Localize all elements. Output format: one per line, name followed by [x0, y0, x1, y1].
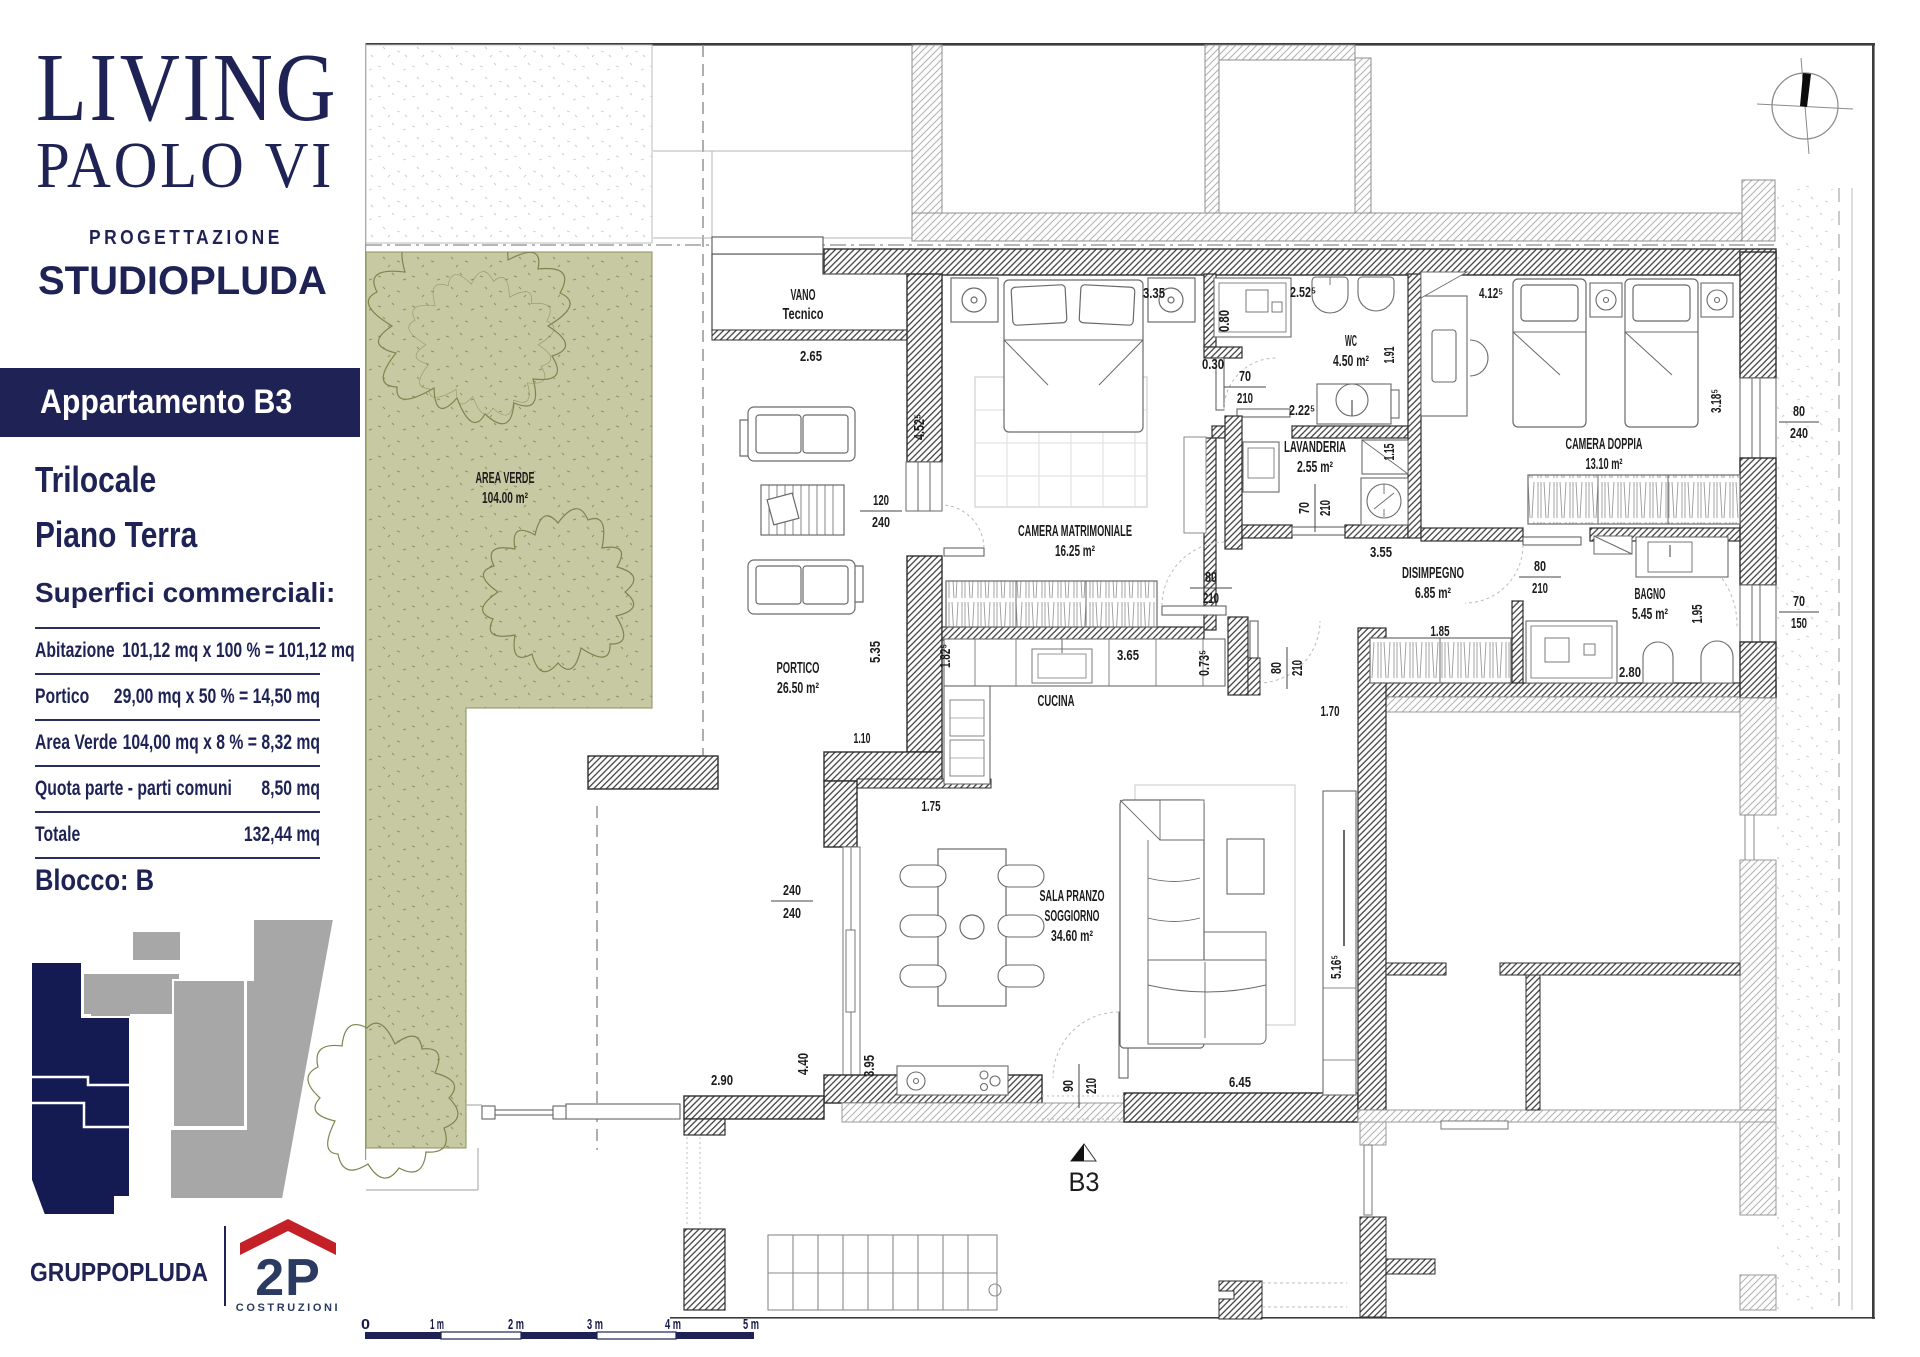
svg-text:2.55 m²: 2.55 m²	[1297, 459, 1333, 476]
svg-text:2 m: 2 m	[508, 1316, 524, 1333]
svg-text:120: 120	[873, 492, 889, 509]
svg-text:70: 70	[1793, 593, 1805, 610]
svg-text:104.00 m²: 104.00 m²	[482, 490, 528, 507]
svg-text:B3: B3	[1069, 1167, 1100, 1197]
svg-text:WC: WC	[1345, 333, 1357, 350]
svg-text:5 m: 5 m	[743, 1316, 759, 1333]
svg-text:3.65: 3.65	[1117, 647, 1139, 664]
svg-text:80: 80	[1793, 403, 1805, 420]
svg-text:240: 240	[1790, 425, 1808, 442]
svg-text:240: 240	[872, 514, 890, 531]
svg-text:210: 210	[1203, 590, 1219, 607]
svg-text:70: 70	[1296, 502, 1313, 514]
svg-text:210: 210	[1289, 660, 1306, 676]
svg-text:3 m: 3 m	[587, 1316, 603, 1333]
svg-text:240: 240	[783, 905, 801, 922]
svg-text:13.10 m²: 13.10 m²	[1586, 456, 1623, 473]
svg-text:6.45: 6.45	[1229, 1074, 1251, 1091]
svg-text:CAMERA DOPPIA: CAMERA DOPPIA	[1566, 436, 1643, 453]
svg-text:4.50 m²: 4.50 m²	[1333, 353, 1369, 370]
svg-text:210: 210	[1083, 1078, 1100, 1094]
svg-text:1 m: 1 m	[430, 1316, 444, 1333]
svg-text:3.35: 3.35	[1143, 285, 1165, 302]
svg-text:3.55: 3.55	[1370, 544, 1392, 561]
svg-text:4.40: 4.40	[795, 1053, 812, 1075]
svg-text:0: 0	[361, 1316, 370, 1333]
svg-text:1.15: 1.15	[1381, 444, 1398, 461]
svg-text:SOGGIORNO: SOGGIORNO	[1045, 908, 1100, 925]
svg-text:210: 210	[1317, 500, 1334, 516]
svg-text:1.82⁵: 1.82⁵	[937, 644, 954, 668]
svg-text:210: 210	[1532, 580, 1548, 597]
svg-text:16.25 m²: 16.25 m²	[1055, 543, 1095, 560]
svg-text:DISIMPEGNO: DISIMPEGNO	[1402, 565, 1464, 582]
svg-text:3.18⁵: 3.18⁵	[1708, 389, 1725, 413]
svg-text:2.22⁵: 2.22⁵	[1289, 402, 1315, 419]
svg-text:LAVANDERIA: LAVANDERIA	[1284, 439, 1346, 456]
svg-text:2.52⁵: 2.52⁵	[1290, 284, 1316, 301]
svg-text:34.60 m²: 34.60 m²	[1051, 928, 1093, 945]
svg-text:210: 210	[1237, 390, 1253, 407]
svg-text:90: 90	[1060, 1080, 1077, 1092]
svg-text:80: 80	[1534, 558, 1546, 575]
svg-text:5.35: 5.35	[867, 641, 884, 663]
svg-text:1.75: 1.75	[922, 798, 941, 815]
svg-text:3.95: 3.95	[861, 1055, 878, 1077]
svg-text:AREA VERDE: AREA VERDE	[476, 470, 535, 487]
svg-text:1.70: 1.70	[1321, 703, 1340, 720]
svg-text:0.73⁵: 0.73⁵	[1196, 650, 1213, 676]
svg-text:2.90: 2.90	[711, 1072, 733, 1089]
svg-text:6.85 m²: 6.85 m²	[1415, 585, 1451, 602]
svg-text:5.16⁵: 5.16⁵	[1328, 955, 1345, 979]
svg-text:4 m: 4 m	[665, 1316, 681, 1333]
svg-text:5.45 m²: 5.45 m²	[1632, 606, 1668, 623]
svg-text:1.10: 1.10	[854, 730, 871, 747]
svg-text:BAGNO: BAGNO	[1635, 586, 1666, 603]
svg-text:SALA PRANZO: SALA PRANZO	[1040, 888, 1105, 905]
svg-text:80: 80	[1205, 569, 1217, 586]
svg-text:1.95: 1.95	[1689, 605, 1706, 624]
svg-text:VANO: VANO	[791, 287, 816, 304]
svg-text:PORTICO: PORTICO	[777, 660, 820, 677]
svg-text:0.80: 0.80	[1216, 310, 1233, 332]
svg-text:0.30: 0.30	[1202, 356, 1224, 373]
svg-text:1.85: 1.85	[1431, 623, 1450, 640]
svg-text:240: 240	[783, 882, 801, 899]
svg-text:80: 80	[1268, 662, 1285, 674]
svg-text:CAMERA MATRIMONIALE: CAMERA MATRIMONIALE	[1018, 523, 1132, 540]
svg-text:2.65: 2.65	[800, 348, 822, 365]
svg-text:1.91: 1.91	[1381, 347, 1398, 364]
svg-text:CUCINA: CUCINA	[1038, 693, 1075, 710]
svg-text:26.50 m²: 26.50 m²	[777, 680, 819, 697]
svg-text:2.80: 2.80	[1619, 664, 1641, 681]
svg-text:150: 150	[1791, 615, 1807, 632]
svg-text:70: 70	[1239, 368, 1251, 385]
svg-text:Tecnico: Tecnico	[783, 306, 824, 323]
svg-text:4.12⁵: 4.12⁵	[1479, 285, 1503, 302]
svg-text:4.52⁵: 4.52⁵	[911, 414, 928, 440]
